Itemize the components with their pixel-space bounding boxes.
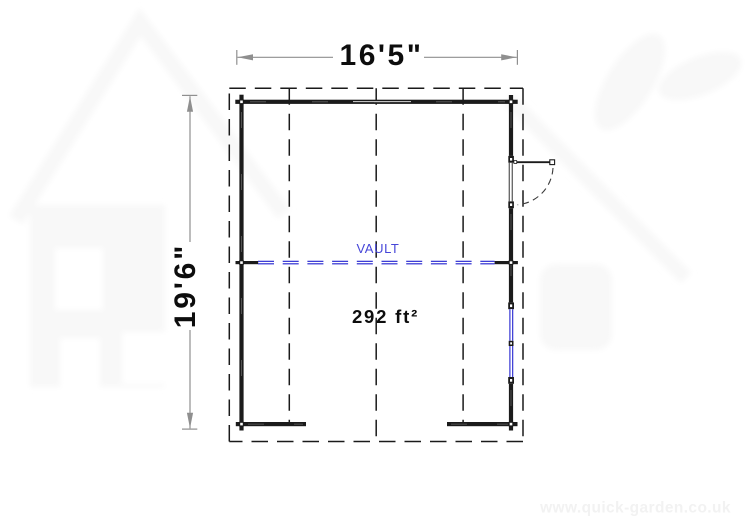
svg-text:www.quick-garden.co.uk: www.quick-garden.co.uk [539, 500, 731, 517]
svg-text:19'6": 19'6" [169, 243, 202, 328]
svg-text:292 ft²: 292 ft² [352, 306, 419, 327]
svg-text:VAULT: VAULT [357, 241, 400, 256]
svg-text:16'5": 16'5" [340, 39, 424, 72]
